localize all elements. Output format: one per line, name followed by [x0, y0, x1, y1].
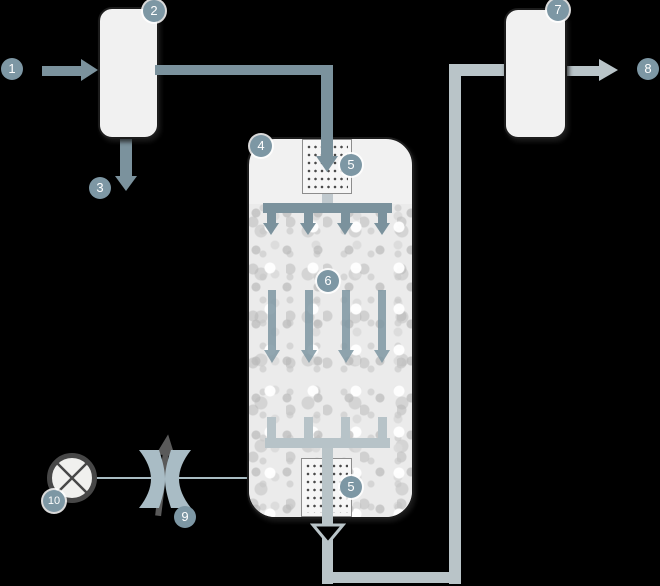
flow-arrowhead: [338, 350, 354, 363]
pipe-vesselB-bottom-outlet: [322, 448, 333, 584]
badge-7: 7: [547, 0, 569, 21]
flow-arrow-icon: [305, 290, 313, 350]
distribution-arrowhead: [263, 223, 279, 235]
badge-2: 2: [143, 0, 165, 22]
badge-1: 1: [1, 58, 23, 80]
flow-arrowhead: [264, 350, 280, 363]
arrowhead-drain-3: [115, 176, 137, 191]
distribution-arrowhead: [374, 223, 390, 235]
flow-arrowhead: [374, 350, 390, 363]
process-flow-diagram: 1 2 3 4 5 6 5 7 8 9 10: [0, 0, 660, 586]
flow-arrow-icon: [342, 290, 350, 350]
pipe-vesselA-out-horizontal: [155, 65, 333, 75]
distribution-arrowhead: [300, 223, 316, 235]
badge-10: 10: [43, 490, 65, 512]
arrowhead-outlet-8: [599, 59, 618, 81]
pipe-riser-vertical: [449, 64, 461, 584]
badge-8: 8: [637, 58, 659, 80]
badge-9: 9: [174, 506, 196, 528]
arrowhead-into-vesselB: [316, 156, 338, 172]
badge-3: 3: [89, 177, 111, 199]
arrowhead-feed-inlet: [81, 59, 98, 81]
pipe-feed-inlet: [42, 66, 83, 76]
pipe-vesselA-down-vertical: [321, 65, 333, 157]
pipe-into-vessel7: [449, 64, 504, 76]
badge-5-top: 5: [340, 154, 362, 176]
vessel-2-pretreatment: [98, 7, 159, 139]
distribution-manifold-bar: [263, 203, 392, 213]
vessel-7-posttreatment: [504, 8, 567, 139]
flow-arrow-icon: [268, 290, 276, 350]
chevron-arrowhead-down: [310, 522, 346, 546]
pipe-vessel7-outlet: [563, 66, 600, 76]
badge-5-bottom: 5: [340, 476, 362, 498]
badge-4: 4: [250, 135, 272, 157]
distribution-arrowhead: [337, 223, 353, 235]
pipe-vesselA-bottom-outlet: [120, 135, 132, 177]
pipe-bottom-horizontal: [322, 572, 461, 583]
collection-manifold-bar: [265, 438, 390, 448]
badge-6: 6: [317, 270, 339, 292]
flow-arrow-icon: [378, 290, 386, 350]
flow-arrowhead: [301, 350, 317, 363]
